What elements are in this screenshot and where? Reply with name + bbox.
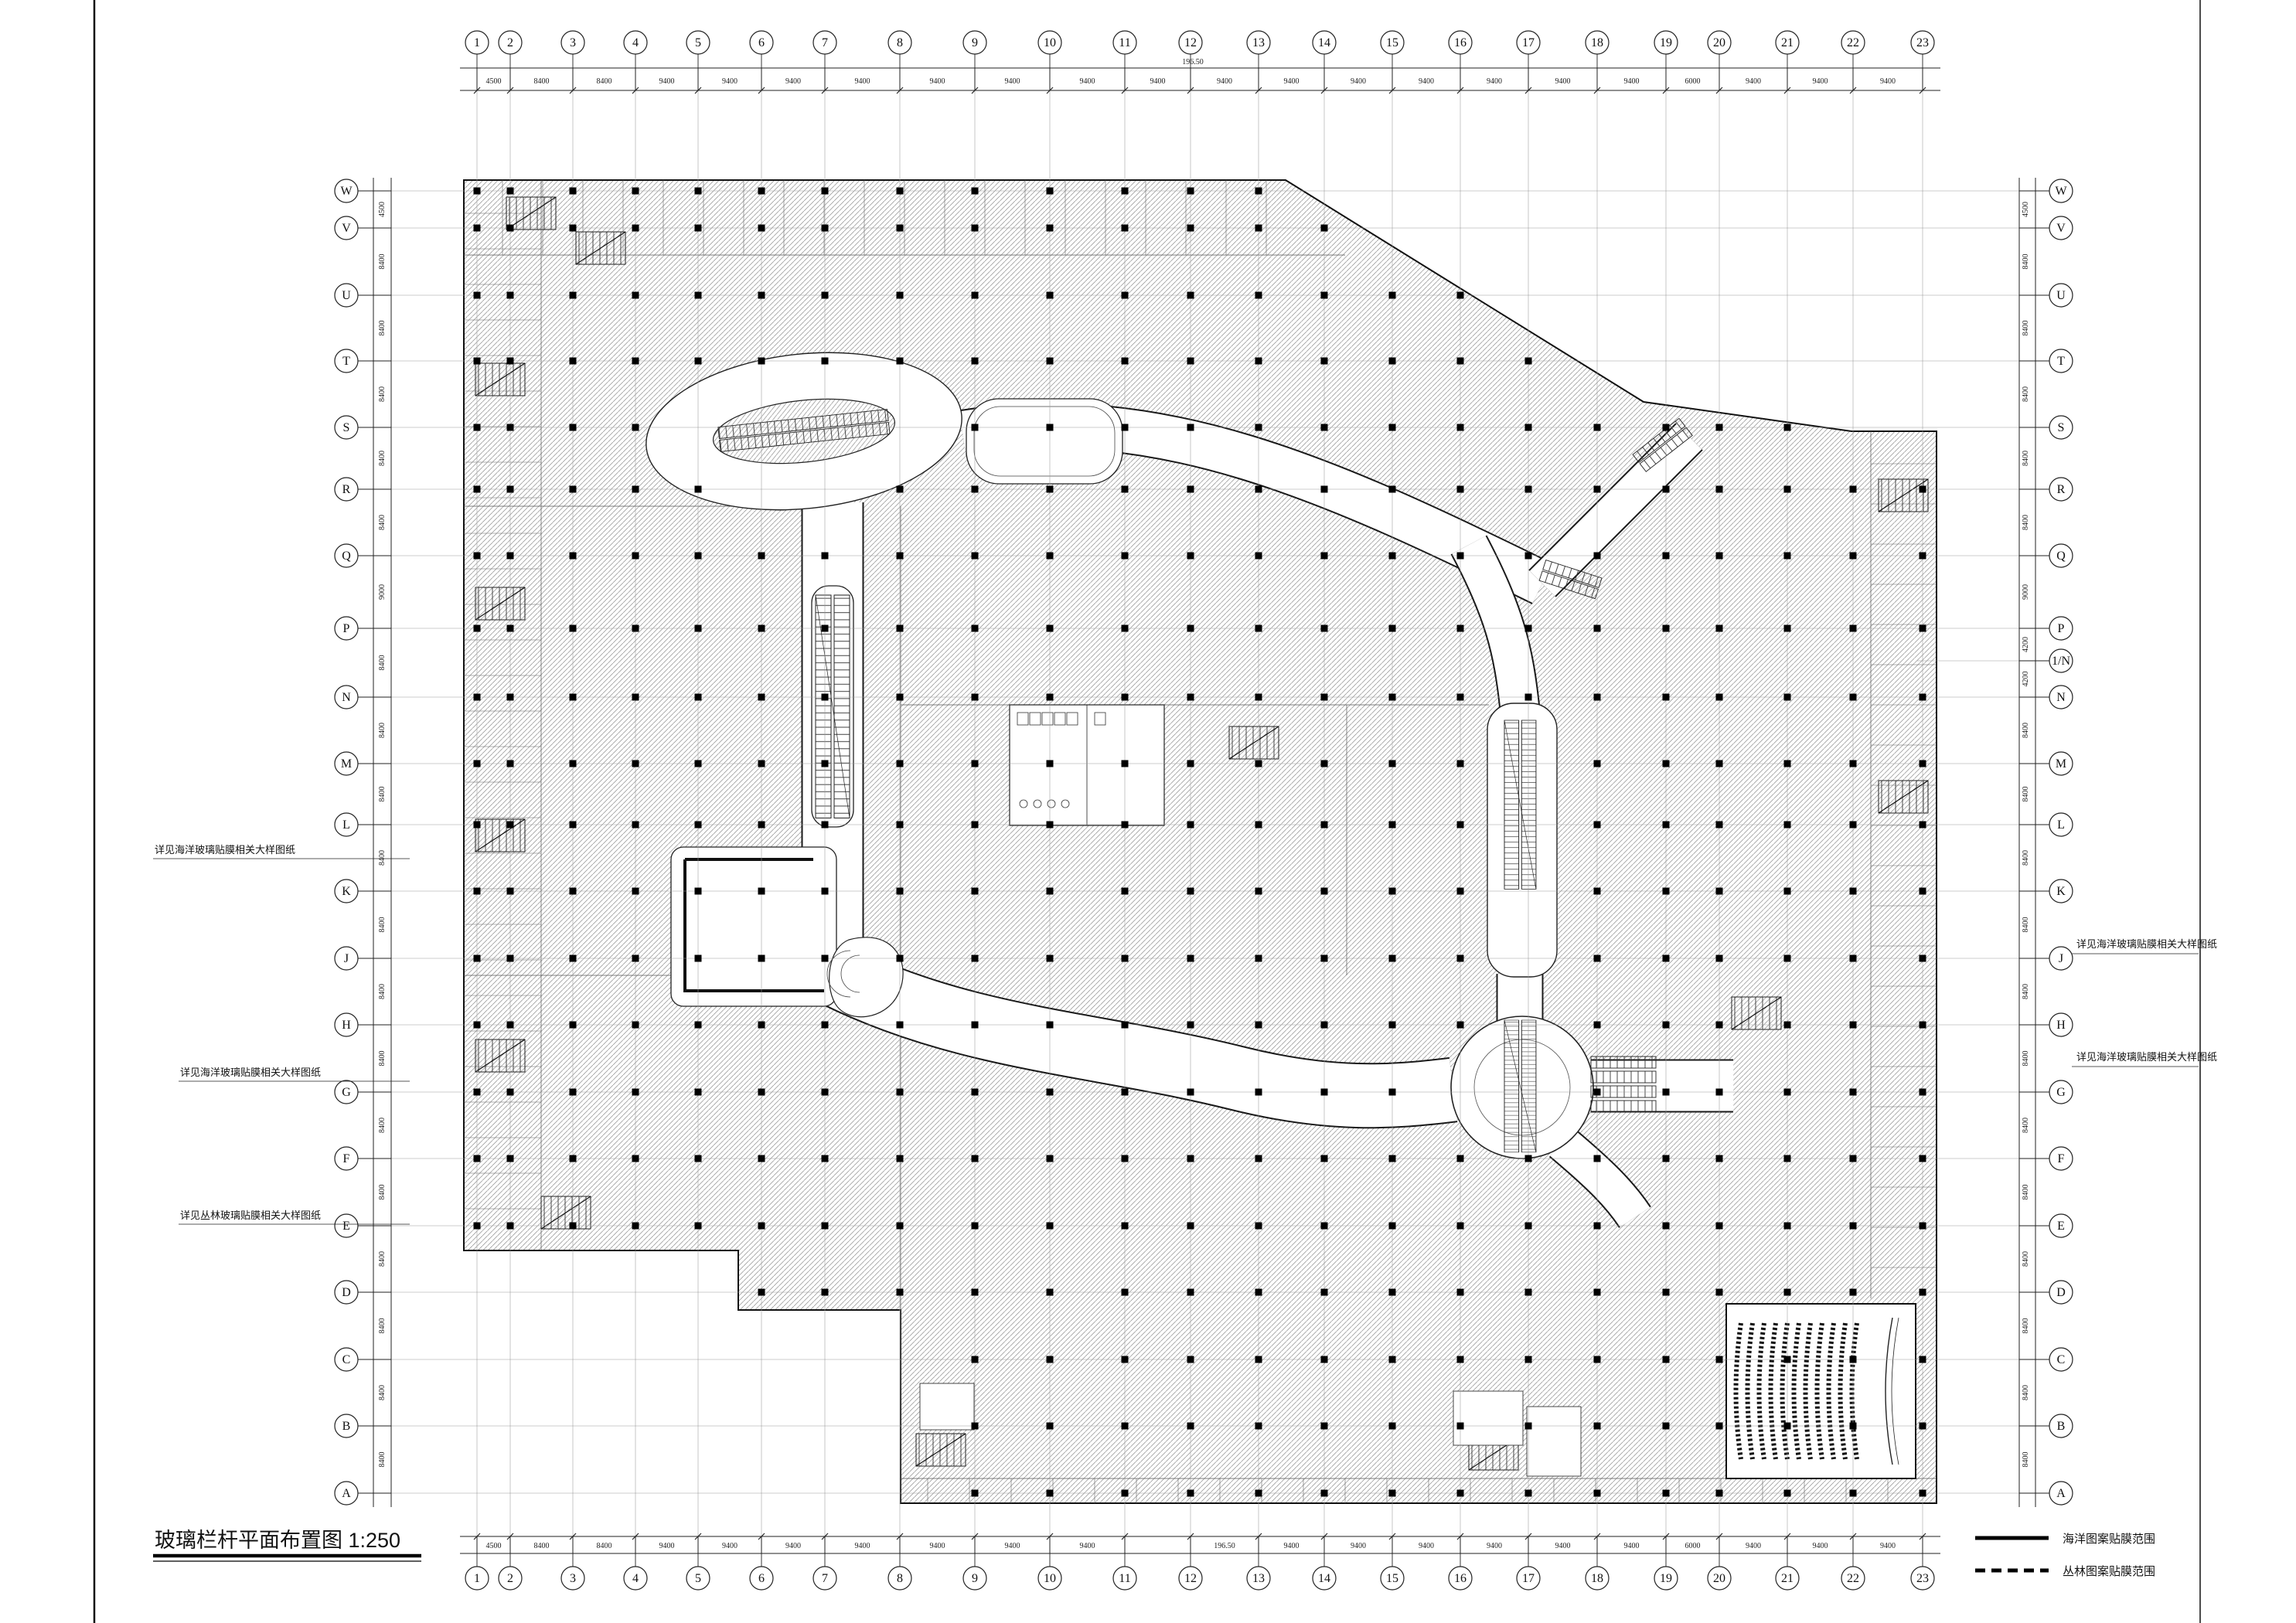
column-dot (1187, 888, 1194, 895)
column-dot (1716, 694, 1723, 701)
column-dot (972, 822, 979, 829)
column-dot (1920, 553, 1926, 560)
column-dot (474, 424, 481, 431)
column-dot (758, 225, 765, 232)
column-dot (1047, 553, 1054, 560)
column-dot (1255, 424, 1262, 431)
column-dot (474, 358, 481, 365)
column-dot (1457, 625, 1464, 632)
column-dot (1255, 1022, 1262, 1029)
dimension-text: 9400 (722, 77, 738, 86)
dimension-text: 8400 (378, 1251, 387, 1267)
column-dot (1850, 553, 1857, 560)
row-grid-bubble-label: U (2056, 289, 2066, 302)
column-dot (1594, 424, 1601, 431)
column-dot (695, 888, 702, 895)
column-dot (1255, 822, 1262, 829)
column-grid-bubble-label: 20 (1713, 36, 1725, 49)
legend: 海洋图案贴膜范围 丛林图案贴膜范围 (1975, 1532, 2155, 1578)
column-dot (1784, 1223, 1791, 1230)
restroom-block (1010, 705, 1164, 825)
column-dot (1920, 1423, 1926, 1430)
column-grid-bubble-label: 14 (1318, 36, 1330, 49)
column-dot (1321, 1223, 1328, 1230)
row-grid-bubble-label: E (2057, 1220, 2065, 1233)
dimension-text: 8400 (378, 1185, 387, 1200)
column-dot (972, 1223, 979, 1230)
column-dot (1920, 694, 1926, 701)
column-dot (1047, 1289, 1054, 1296)
column-dot (1321, 955, 1328, 962)
column-dot (474, 955, 481, 962)
column-grid-bubble-label: 6 (758, 36, 765, 49)
column-dot (1187, 1155, 1194, 1162)
column-dot (1525, 424, 1532, 431)
column-dot (1122, 292, 1129, 299)
column-dot (822, 1089, 829, 1096)
service-room (920, 1383, 974, 1430)
column-dot (758, 955, 765, 962)
dimension-text: 9400 (1217, 77, 1232, 86)
column-dot (1850, 1022, 1857, 1029)
column-dot (1122, 760, 1129, 767)
row-grid-bubble-label: A (2056, 1487, 2066, 1500)
row-grid-bubble-label: A (342, 1487, 351, 1500)
column-dot (972, 888, 979, 895)
column-dot (1784, 1423, 1791, 1430)
column-dot (1187, 188, 1194, 195)
column-dot (507, 955, 514, 962)
column-dot (1255, 292, 1262, 299)
dimension-text: 6000 (1685, 77, 1701, 86)
dimension-text: 9400 (1284, 1542, 1300, 1550)
column-dot (897, 188, 904, 195)
column-dot (897, 292, 904, 299)
column-dot (474, 292, 481, 299)
dimension-text: 9400 (1419, 77, 1434, 86)
column-dot (1594, 760, 1601, 767)
column-dot (507, 888, 514, 895)
column-dot (1594, 822, 1601, 829)
dimension-text: 9400 (930, 1542, 945, 1550)
dimension-text: 9400 (1487, 77, 1502, 86)
dimension-text: 8400 (2022, 1385, 2030, 1400)
column-dot (507, 358, 514, 365)
column-dot (1594, 1022, 1601, 1029)
floor-plan-sheet: 4500840084009400940094009400940094009400… (0, 0, 2296, 1623)
dimension-text: 8400 (2022, 984, 2030, 999)
column-dot (972, 225, 979, 232)
column-dot (1594, 625, 1601, 632)
column-dot (632, 188, 639, 195)
column-dot (1784, 694, 1791, 701)
column-dot (570, 625, 577, 632)
dimension-text: 8400 (378, 1118, 387, 1133)
column-grid-bubble-label: 22 (1847, 36, 1859, 49)
column-dot (1716, 1155, 1723, 1162)
column-dot (1457, 1022, 1464, 1029)
column-dot (822, 822, 829, 829)
column-dot (474, 553, 481, 560)
column-dot (507, 822, 514, 829)
dimension-text: 8400 (378, 386, 387, 402)
column-dot (1321, 694, 1328, 701)
column-dot (632, 760, 639, 767)
dimension-text: 8400 (2022, 917, 2030, 933)
dimension-text: 9400 (930, 77, 945, 86)
column-dot (1047, 1155, 1054, 1162)
row-grid-bubble-label: C (342, 1353, 351, 1366)
column-dot (1920, 888, 1926, 895)
column-dot (1920, 1089, 1926, 1096)
central-atrium (1487, 703, 1557, 977)
column-dot (1321, 424, 1328, 431)
column-dot (972, 486, 979, 493)
row-grid-bubble-label: Q (2056, 550, 2066, 563)
column-dot (1321, 292, 1328, 299)
column-dot (1716, 553, 1723, 560)
column-dot (1850, 1423, 1857, 1430)
column-dot (632, 486, 639, 493)
dimension-text: 8400 (378, 321, 387, 336)
annotation-left-2: 详见海洋玻璃贴膜相关大样图纸 (180, 1067, 321, 1078)
column-dot (1389, 358, 1396, 365)
dimension-text: 9000 (378, 584, 387, 600)
column-dot (570, 1223, 577, 1230)
column-dot (570, 292, 577, 299)
column-dot (1663, 694, 1670, 701)
column-dot (1457, 1356, 1464, 1363)
row-grid-bubble-label: H (342, 1019, 351, 1032)
column-dot (1784, 1289, 1791, 1296)
row-grid-bubble-label: N (2056, 691, 2066, 704)
column-grid-bubble-label: 16 (1454, 1572, 1467, 1585)
column-grid-bubble-label: 8 (897, 1572, 903, 1585)
annotation-right-1: 详见海洋玻璃贴膜相关大样图纸 (2076, 938, 2217, 950)
column-dot (1594, 1356, 1601, 1363)
column-dot (1457, 358, 1464, 365)
column-dot (632, 358, 639, 365)
column-dot (695, 1155, 702, 1162)
dimension-text: 8400 (378, 1452, 387, 1468)
column-dot (695, 292, 702, 299)
column-dot (972, 424, 979, 431)
column-grid-bubble-label: 18 (1591, 36, 1603, 49)
column-dot (1850, 1223, 1857, 1230)
column-dot (1122, 1022, 1129, 1029)
column-dot (1525, 553, 1532, 560)
column-grid-bubble-label: 12 (1184, 1572, 1197, 1585)
column-dot (1122, 358, 1129, 365)
column-dot (972, 694, 979, 701)
column-dot (1784, 822, 1791, 829)
column-dot (1047, 1022, 1054, 1029)
column-dot (822, 1022, 829, 1029)
column-dot (1389, 292, 1396, 299)
dimension-text: 9400 (1005, 1542, 1020, 1550)
column-dot (1122, 1423, 1129, 1430)
column-grid-bubble-label: 7 (822, 1572, 828, 1585)
column-dot (822, 292, 829, 299)
column-dot (1389, 424, 1396, 431)
column-dot (570, 1155, 577, 1162)
column-dot (1594, 955, 1601, 962)
column-dot (1457, 955, 1464, 962)
column-dot (1321, 1022, 1328, 1029)
dimension-text: 8400 (2022, 386, 2030, 402)
column-dot (897, 486, 904, 493)
column-dot (1663, 1022, 1670, 1029)
column-dot (758, 188, 765, 195)
dimension-text: 8400 (2022, 1318, 2030, 1334)
column-dot (1321, 760, 1328, 767)
column-dot (1047, 424, 1054, 431)
column-dot (1594, 1155, 1601, 1162)
column-dot (1457, 694, 1464, 701)
column-dot (1784, 1490, 1791, 1497)
dimension-text: 8400 (2022, 254, 2030, 270)
column-dot (1784, 1022, 1791, 1029)
column-dot (1457, 1155, 1464, 1162)
dimension-text: 9400 (1351, 1542, 1366, 1550)
column-dot (1187, 292, 1194, 299)
column-dot (1850, 694, 1857, 701)
column-dot (507, 486, 514, 493)
column-dot (1122, 424, 1129, 431)
dimension-text: 8400 (2022, 1251, 2030, 1267)
row-grid-bubble-label: V (342, 222, 351, 235)
column-dot (1047, 694, 1054, 701)
column-dot (695, 1022, 702, 1029)
row-grid-bubble-label: H (2056, 1019, 2066, 1032)
column-grid-bubble-label: 3 (570, 36, 576, 49)
column-dot (1187, 822, 1194, 829)
column-dot (1047, 358, 1054, 365)
dimension-text: 9400 (1746, 77, 1761, 86)
dimension-text: 8400 (534, 1542, 550, 1550)
column-dot (1047, 1089, 1054, 1096)
column-dot (758, 888, 765, 895)
column-dot (897, 1155, 904, 1162)
column-dot (1187, 486, 1194, 493)
column-dot (632, 694, 639, 701)
stair-icon (916, 1434, 966, 1466)
row-grid-bubble-label: W (340, 185, 353, 198)
column-dot (1525, 358, 1532, 365)
row-grid-bubble-label: S (343, 421, 350, 434)
column-dot (1850, 822, 1857, 829)
column-dot (474, 486, 481, 493)
column-dot (1457, 1490, 1464, 1497)
column-dot (1389, 1423, 1396, 1430)
dimension-text: 9400 (1150, 77, 1166, 86)
column-dot (1716, 1089, 1723, 1096)
column-dot (474, 694, 481, 701)
dimension-text: 9400 (1284, 77, 1300, 86)
dimension-text: 4500 (2022, 202, 2030, 217)
column-dot (897, 553, 904, 560)
column-dot (1389, 1289, 1396, 1296)
dimension-text: 9400 (1555, 77, 1571, 86)
column-dot (632, 955, 639, 962)
column-dot (1255, 358, 1262, 365)
row-grid-bubble-label: R (2057, 483, 2066, 496)
column-dot (1122, 553, 1129, 560)
column-dot (1920, 955, 1926, 962)
column-dot (1850, 888, 1857, 895)
column-dot (1187, 1289, 1194, 1296)
column-dot (1321, 888, 1328, 895)
dimension-text: 9400 (722, 1542, 738, 1550)
column-dot (1457, 292, 1464, 299)
column-dot (1716, 1289, 1723, 1296)
column-dot (758, 760, 765, 767)
column-dot (1255, 1490, 1262, 1497)
column-dot (972, 1356, 979, 1363)
column-dot (1047, 955, 1054, 962)
column-dot (1389, 822, 1396, 829)
column-dot (897, 1289, 904, 1296)
column-dot (1784, 955, 1791, 962)
legend-label-solid: 海洋图案贴膜范围 (2063, 1532, 2155, 1546)
column-dot (972, 188, 979, 195)
dimension-text: 9400 (785, 77, 801, 86)
column-dot (695, 358, 702, 365)
column-dot (1663, 1089, 1670, 1096)
column-dot (474, 1223, 481, 1230)
dimension-text: 4200 (2022, 672, 2030, 687)
dimension-text: 8400 (534, 77, 550, 86)
column-grid-bubble-label: 7 (822, 36, 828, 49)
column-dot (695, 486, 702, 493)
column-grid-bubble-label: 21 (1781, 36, 1794, 49)
column-dot (1187, 1223, 1194, 1230)
column-dot (822, 694, 829, 701)
dimension-text: 9400 (1624, 1542, 1640, 1550)
column-dot (972, 625, 979, 632)
column-grid-bubble-label: 11 (1119, 36, 1130, 49)
column-dot (1321, 1423, 1328, 1430)
row-grid-bubble-label: K (342, 885, 351, 898)
column-dot (1321, 1089, 1328, 1096)
legend-label-dashed: 丛林图案贴膜范围 (2063, 1564, 2155, 1578)
column-dot (632, 225, 639, 232)
column-dot (1321, 1289, 1328, 1296)
column-dot (1663, 1490, 1670, 1497)
column-dot (1784, 486, 1791, 493)
dimension-text: 9400 (1080, 77, 1095, 86)
column-grid-bubble-label: 9 (972, 36, 978, 49)
column-dot (695, 188, 702, 195)
column-dot (897, 1089, 904, 1096)
column-grid-bubble-label: 2 (507, 1572, 513, 1585)
dimension-text: 8400 (2022, 1452, 2030, 1468)
column-dot (507, 1022, 514, 1029)
dimension-text: 4200 (2022, 637, 2030, 652)
column-dot (1255, 1223, 1262, 1230)
column-dot (1321, 553, 1328, 560)
row-grid-bubble-label: N (342, 691, 351, 704)
column-dot (1784, 1089, 1791, 1096)
column-grid-bubble-label: 15 (1386, 36, 1398, 49)
column-dot (1784, 888, 1791, 895)
column-dot (632, 625, 639, 632)
row-grid-bubble-label: E (342, 1220, 350, 1233)
column-dot (1389, 760, 1396, 767)
dimension-text: 8400 (378, 917, 387, 933)
column-dot (822, 888, 829, 895)
column-dot (758, 1223, 765, 1230)
column-dot (822, 1289, 829, 1296)
column-grid-bubble-label: 10 (1044, 36, 1056, 49)
column-dot (1920, 1022, 1926, 1029)
column-grid-bubble-label: 13 (1252, 36, 1265, 49)
column-grid-bubble-label: 1 (474, 36, 480, 49)
column-dot (1716, 1223, 1723, 1230)
column-dot (758, 694, 765, 701)
column-grid-bubble-label: 8 (897, 36, 903, 49)
column-dot (474, 760, 481, 767)
column-grid-bubble-label: 13 (1252, 1572, 1265, 1585)
column-dot (897, 625, 904, 632)
column-dot (1525, 625, 1532, 632)
column-dot (1594, 1423, 1601, 1430)
dimension-text: 9000 (2022, 584, 2030, 600)
column-dot (1047, 822, 1054, 829)
column-dot (1525, 1423, 1532, 1430)
column-dot (695, 760, 702, 767)
column-dot (758, 1289, 765, 1296)
column-dot (972, 1089, 979, 1096)
column-dot (972, 1022, 979, 1029)
stair-icon (475, 363, 525, 396)
column-dot (1716, 1423, 1723, 1430)
column-dot (1920, 1490, 1926, 1497)
row-grid-bubble-label: 1/N (2052, 655, 2070, 668)
column-dot (1716, 1356, 1723, 1363)
round-atrium (1451, 1016, 1593, 1159)
stair-icon (1732, 997, 1781, 1029)
dimension-text: 9400 (855, 77, 870, 86)
column-dot (1920, 760, 1926, 767)
column-grid-bubble-label: 23 (1916, 1572, 1929, 1585)
column-dot (1321, 1490, 1328, 1497)
column-dot (1047, 486, 1054, 493)
column-grid-bubble-label: 4 (632, 1572, 639, 1585)
column-dot (822, 625, 829, 632)
column-grid-bubble-label: 16 (1454, 36, 1467, 49)
column-dot (1457, 822, 1464, 829)
building-outline (464, 180, 1937, 1503)
dimension-text: 4500 (486, 77, 502, 86)
column-dot (1187, 760, 1194, 767)
column-dot (507, 1089, 514, 1096)
row-grid-bubble-label: S (2058, 421, 2065, 434)
column-dot (1389, 1089, 1396, 1096)
dimension-text: 9400 (1005, 77, 1020, 86)
column-dot (695, 225, 702, 232)
column-dot (1663, 822, 1670, 829)
row-grid-bubble-label: G (342, 1086, 351, 1099)
planter-island (966, 399, 1122, 484)
column-dot (695, 955, 702, 962)
column-dot (1321, 486, 1328, 493)
column-dot (507, 292, 514, 299)
row-grid-bubble-label: T (2057, 355, 2065, 368)
column-dot (474, 188, 481, 195)
column-dot (507, 1223, 514, 1230)
column-dot (1187, 1356, 1194, 1363)
